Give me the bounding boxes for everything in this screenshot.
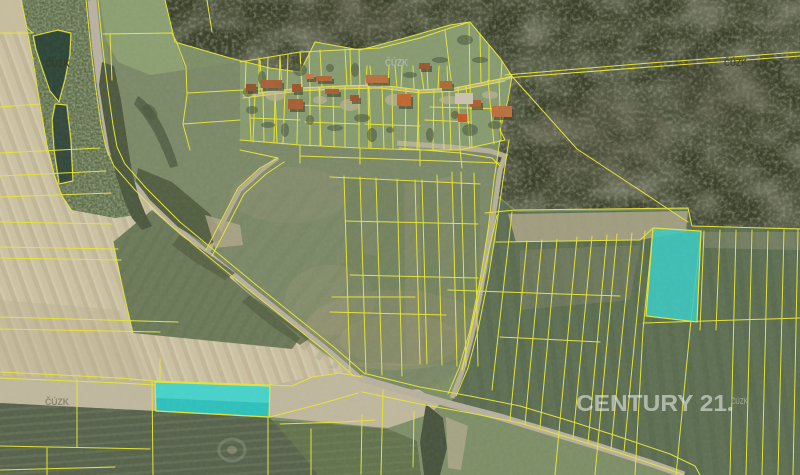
svg-text:ČÚZK: ČÚZK [724, 56, 748, 69]
svg-text:ČÚZK: ČÚZK [45, 57, 70, 70]
svg-text:ČÚZK: ČÚZK [45, 396, 69, 407]
svg-text:ČÚZK: ČÚZK [385, 56, 409, 69]
svg-text:CENTURY 21: CENTURY 21 [576, 390, 727, 416]
svg-text:ČÚZK: ČÚZK [731, 397, 748, 406]
